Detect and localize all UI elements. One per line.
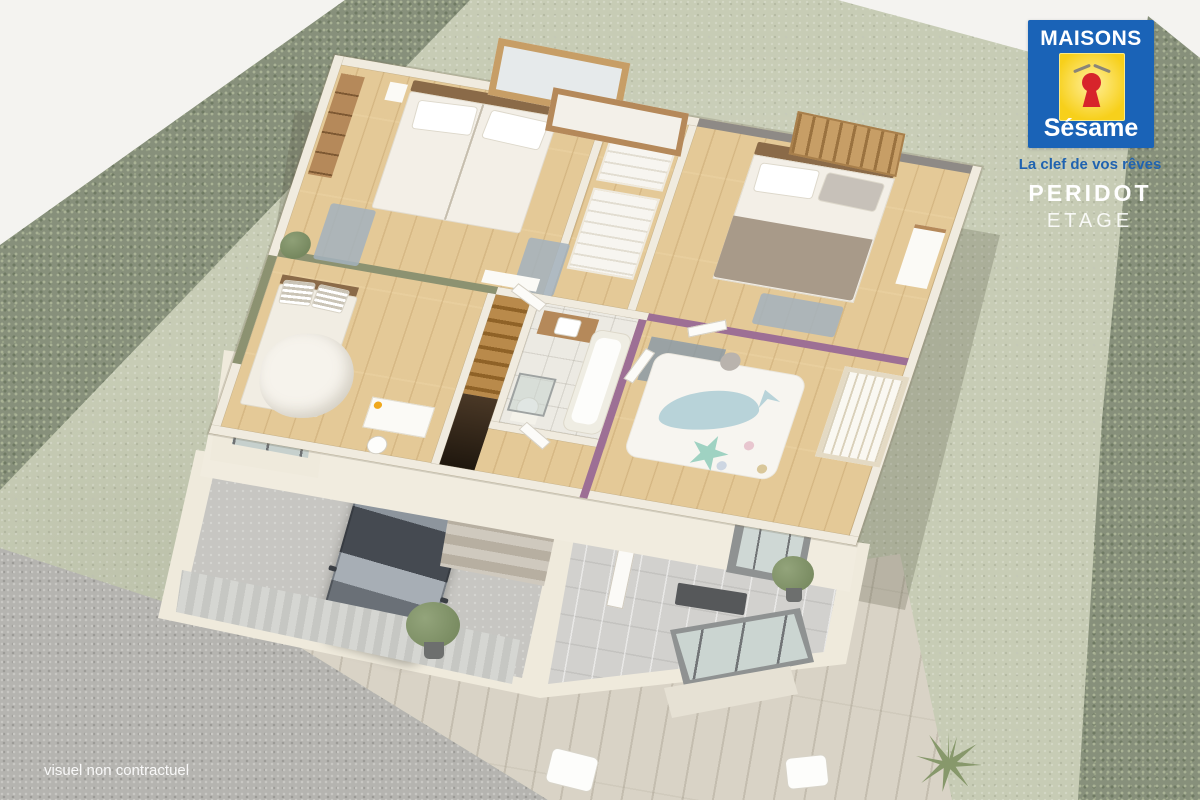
potted-plant	[772, 556, 814, 592]
roof-chevron-icon	[1073, 64, 1091, 74]
keyhole-house-icon	[1059, 53, 1125, 121]
disclaimer-text: visuel non contractuel	[44, 762, 189, 779]
terrace-chair	[784, 754, 829, 790]
plan-subtitle: ETAGE	[980, 210, 1200, 233]
brand-tagline: La clef de vos rêves	[980, 156, 1200, 173]
brand-logo: MAISONS Sésame	[1028, 20, 1154, 148]
keyhole-icon	[1081, 88, 1102, 107]
plan-title: PERIDOT	[980, 180, 1200, 207]
pillow	[278, 280, 316, 307]
floor-plan-render: MAISONS Sésame La clef de vos rêves PERI…	[0, 0, 1200, 800]
brand-name-top: MAISONS	[1028, 27, 1154, 51]
plant-pot	[786, 588, 802, 602]
plant-pot	[424, 642, 444, 659]
brand-name-bottom: Sésame	[1028, 114, 1154, 143]
roof-chevron-icon	[1093, 64, 1111, 74]
